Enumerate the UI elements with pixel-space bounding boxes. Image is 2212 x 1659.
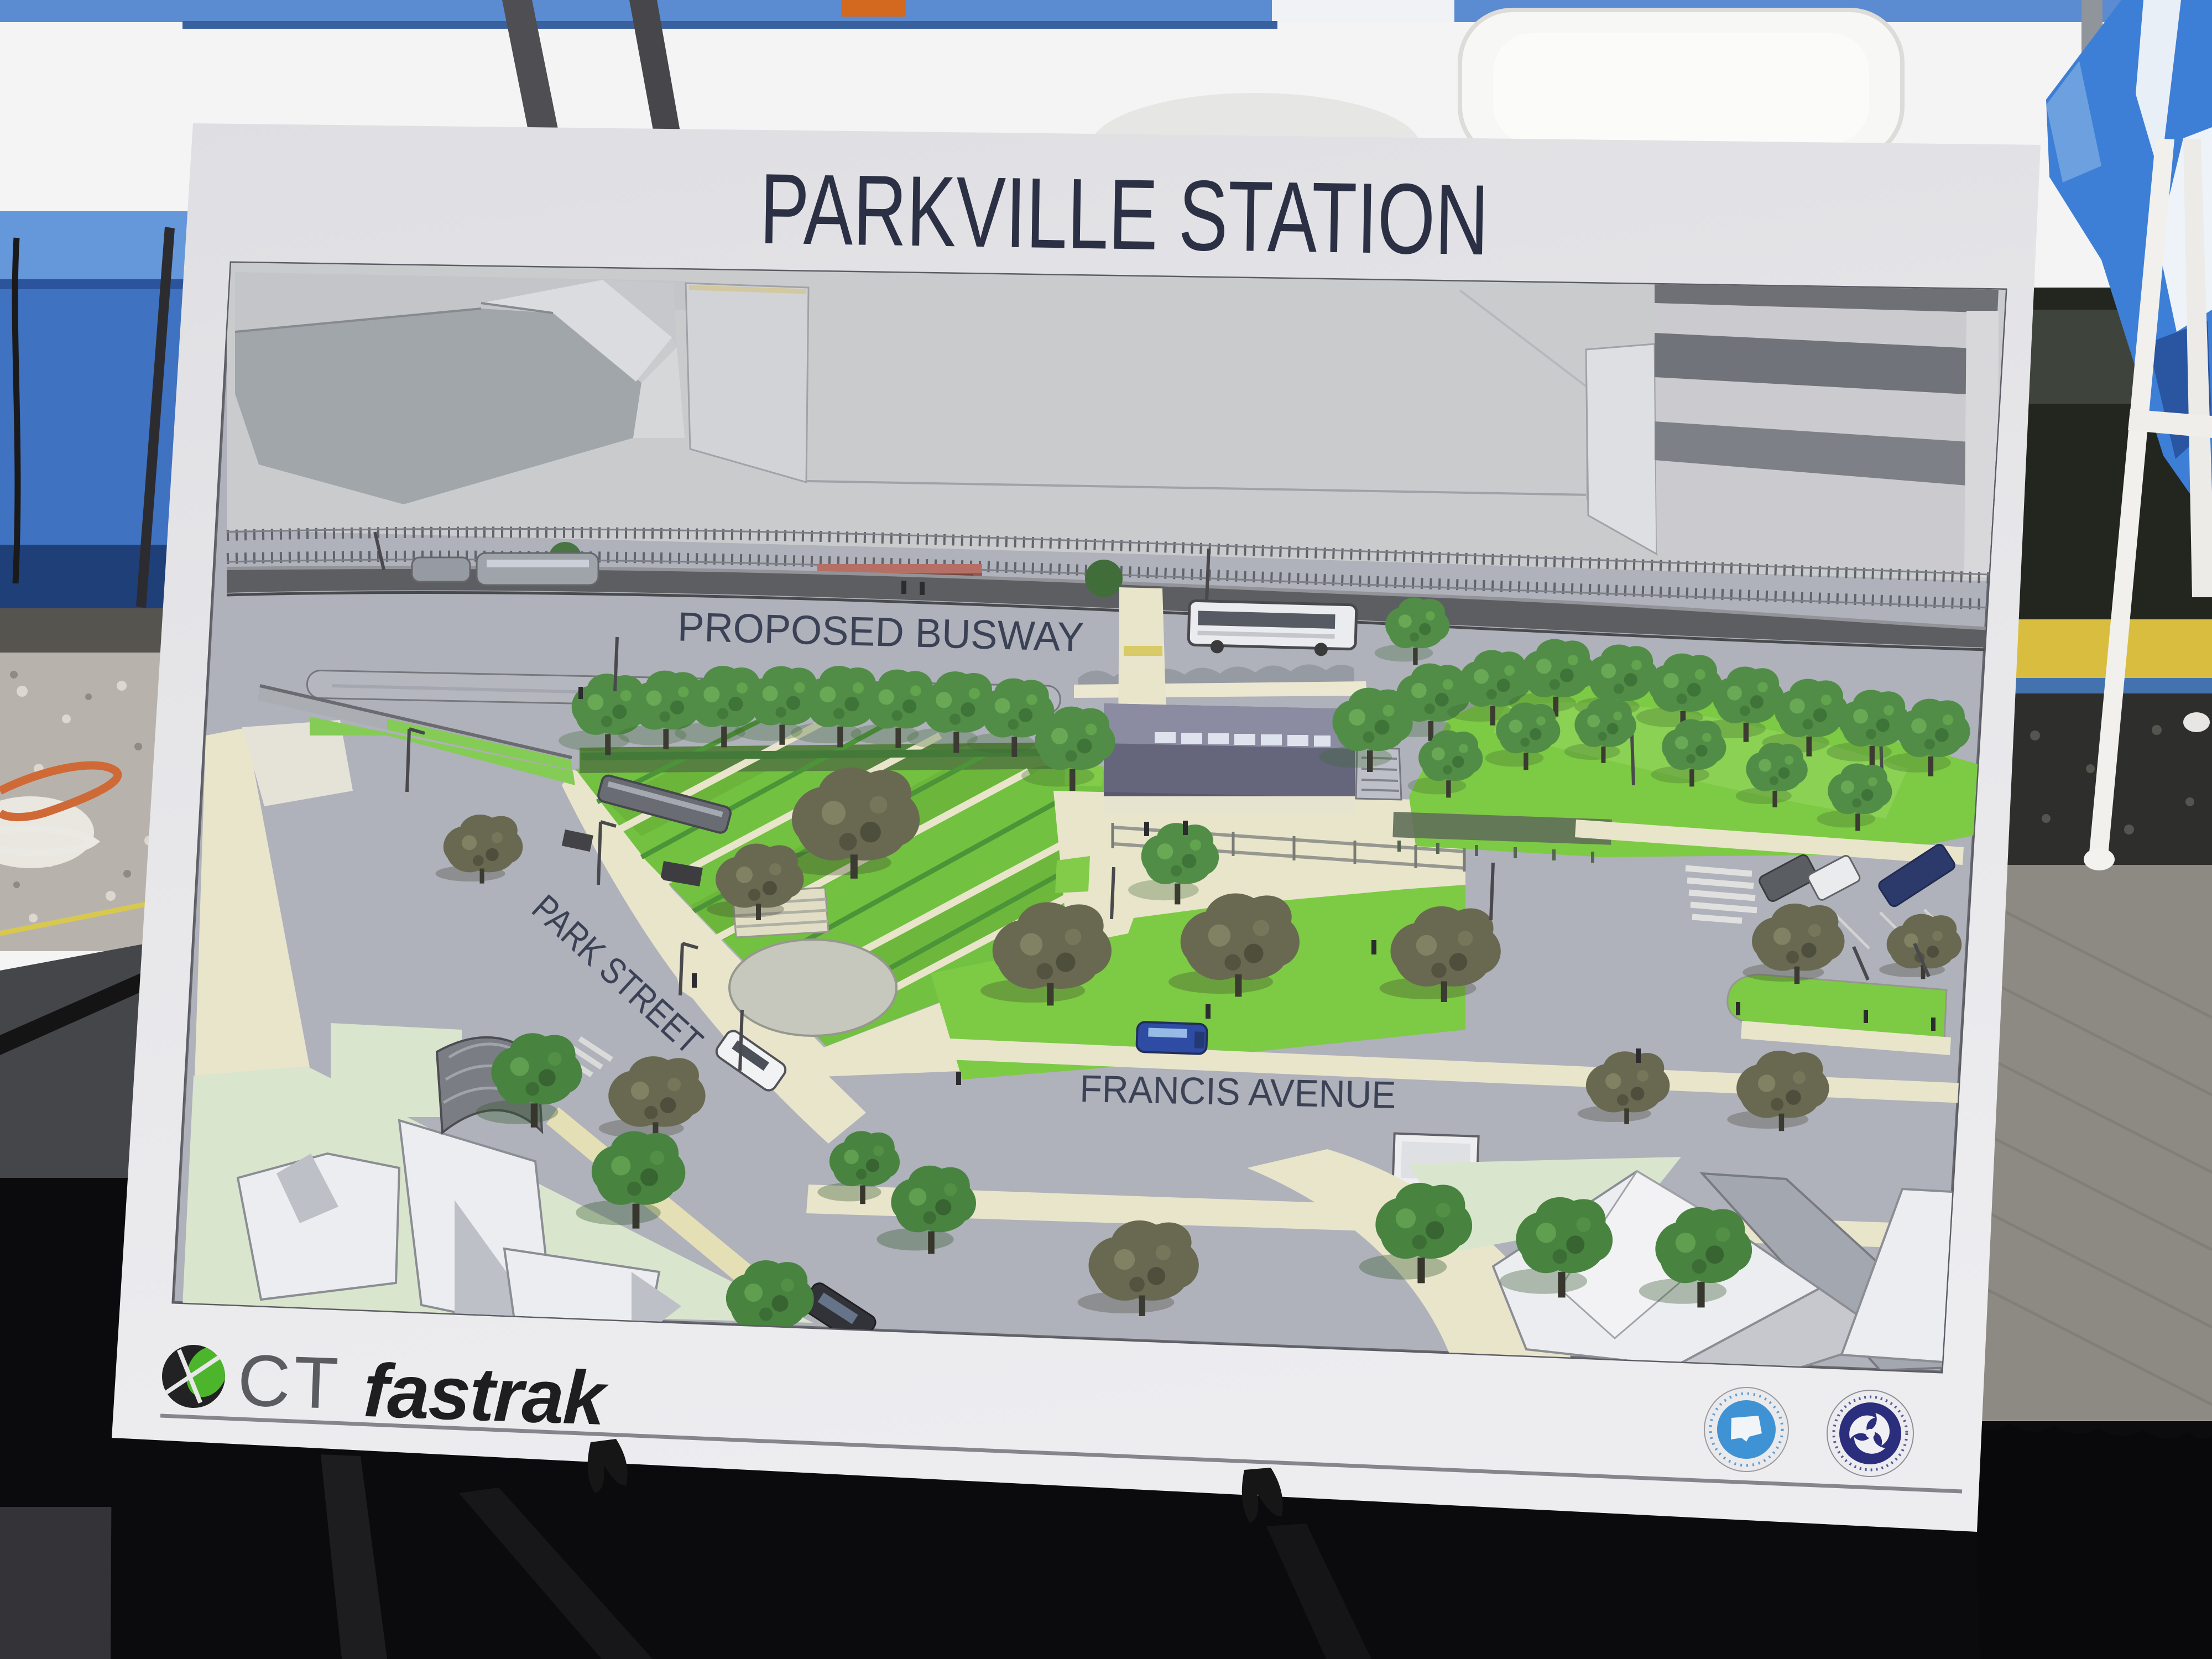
svg-text:PARKVILLE STATION: PARKVILLE STATION (759, 153, 1489, 276)
svg-text:CT: CT (236, 1339, 343, 1424)
